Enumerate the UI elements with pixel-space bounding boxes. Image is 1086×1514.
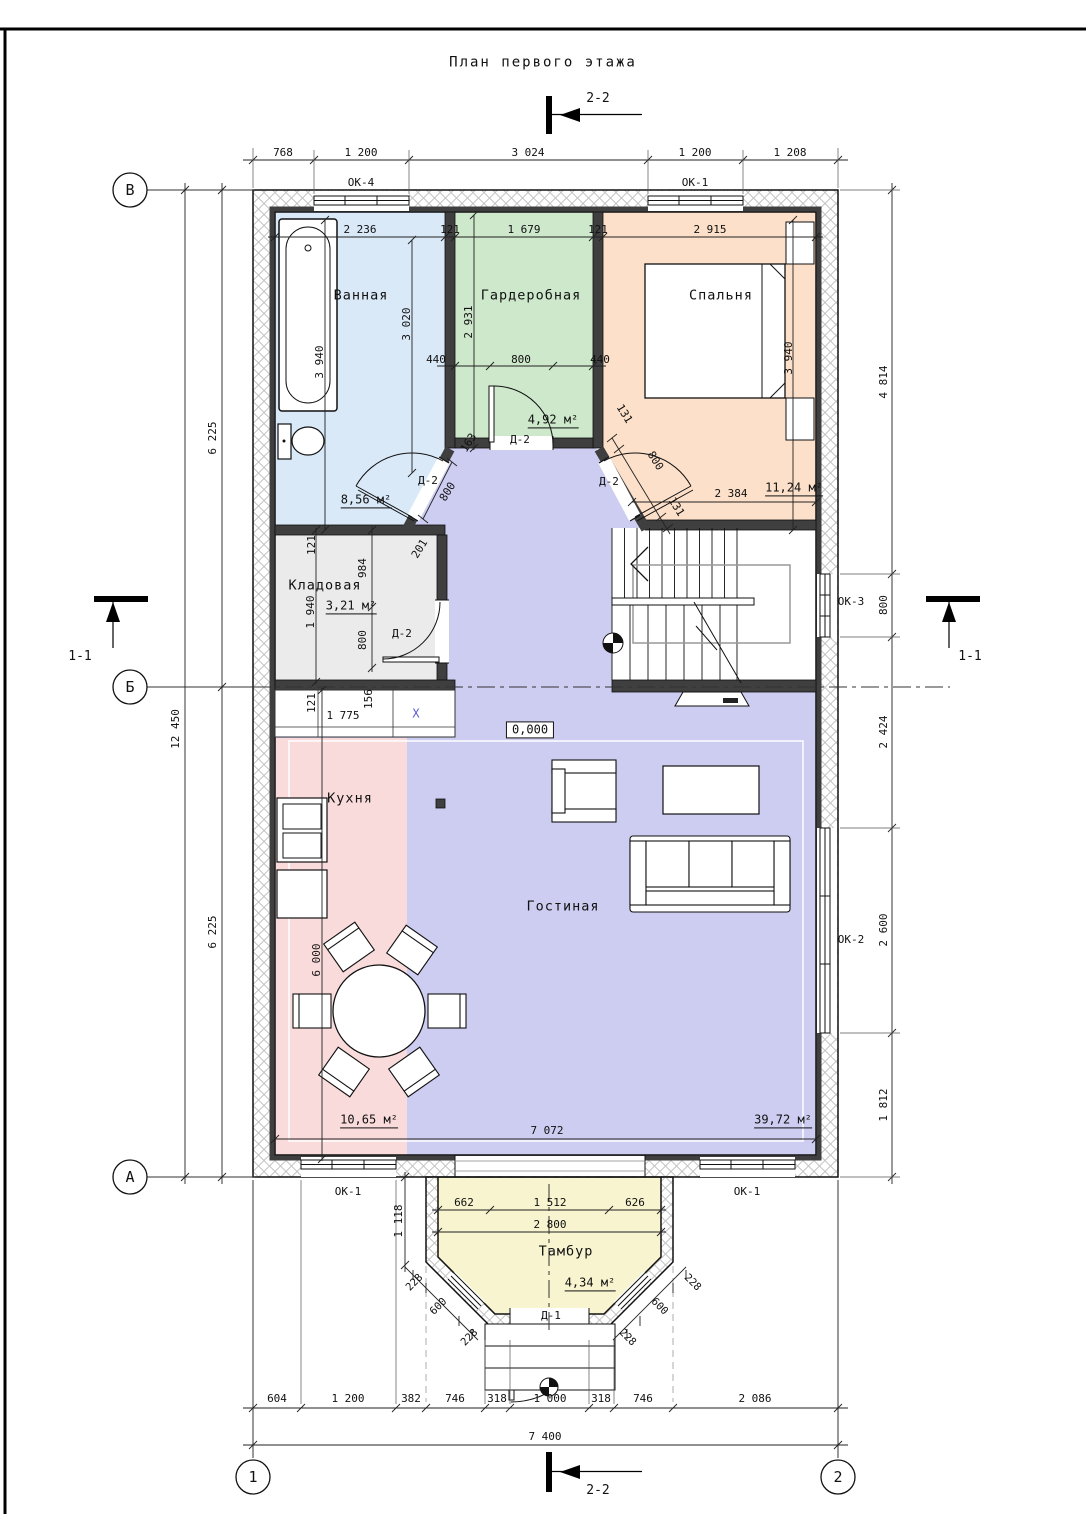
dim-kitchen-wall: 121 — [306, 693, 318, 713]
kitchen-appliances — [277, 798, 327, 918]
nightstand — [786, 222, 814, 264]
section-flag-1-1-left — [94, 596, 148, 648]
window-ok2 — [817, 828, 837, 1033]
dim-wardrobe-chain-0: 440 — [426, 354, 446, 366]
window-ok1-bottom-left — [301, 1157, 396, 1177]
dim-bottom-7: 746 — [633, 1393, 653, 1405]
floor-plan-sheet: План первого этажа 2-2 2-2 1-1 1-1 В Б А… — [0, 0, 1086, 1514]
dim-wardrobe-chain-1: 800 — [511, 354, 531, 366]
door-label-bathroom: Д-2 — [418, 475, 438, 487]
dim-top-4: 1 208 — [773, 147, 806, 159]
axis-label-a: А — [125, 1169, 134, 1186]
axis-label-2: 2 — [833, 1469, 842, 1486]
sofa — [630, 836, 790, 912]
window-label-ok2: ОК-2 — [838, 934, 865, 946]
axis-label-v: В — [125, 182, 134, 199]
dim-right-0: 4 814 — [878, 365, 890, 398]
window-label-ok1-bottom-right: ОК-1 — [734, 1186, 761, 1198]
room-label-living: Гостиная — [526, 900, 599, 915]
dim-inner-top-4: 2 915 — [693, 224, 726, 236]
dim-right-1: 800 — [878, 595, 890, 615]
dim-inner-top-1: 121 — [440, 224, 460, 236]
armchair — [552, 760, 616, 822]
floor-marker — [436, 799, 445, 808]
window-ok1-bottom-right — [700, 1157, 795, 1177]
dim-bedroom-width: 2 384 — [714, 488, 747, 500]
area-label-kitchen: 10,65 м² — [340, 1113, 398, 1128]
area-label-vestibule: 4,34 м² — [565, 1276, 616, 1291]
window-label-ok3: ОК-3 — [838, 596, 865, 608]
dim-top-2: 3 024 — [511, 147, 544, 159]
door-label-wardrobe: Д-2 — [510, 434, 530, 446]
door-label-bedroom: Д-2 — [599, 476, 619, 488]
dim-bottom-1: 1 200 — [331, 1393, 364, 1405]
bathtub — [279, 219, 337, 411]
dim-inner-top-0: 2 236 — [343, 224, 376, 236]
section-label-1-1-left: 1-1 — [68, 650, 91, 664]
entrance-steps — [485, 1324, 615, 1396]
x-marker: X — [412, 707, 419, 720]
dim-bottom-3: 746 — [445, 1393, 465, 1405]
area-label-storage: 3,21 м² — [326, 599, 377, 614]
area-label-living: 39,72 м² — [754, 1113, 812, 1128]
dim-left-0: 6 225 — [207, 421, 219, 454]
door-label-entrance: Д-1 — [541, 1310, 561, 1322]
nightstand — [786, 398, 814, 440]
window-ok3 — [817, 574, 837, 637]
dim-living-width: 7 072 — [530, 1125, 563, 1137]
dim-left-total: 12 450 — [170, 709, 182, 749]
room-label-vestibule: Тамбур — [539, 1245, 594, 1260]
window-label-ok1-bottom-left: ОК-1 — [335, 1186, 362, 1198]
dim-vestibule-chain-2: 626 — [625, 1197, 645, 1209]
axis-label-b: Б — [125, 679, 134, 696]
dim-bedroom-depth: 3 940 — [783, 341, 795, 374]
dim-top-0: 768 — [273, 147, 293, 159]
room-label-bedroom: Спальня — [689, 289, 753, 304]
dim-vestibule-chain-0: 662 — [454, 1197, 474, 1209]
elevation-mark: 0,000 — [506, 721, 554, 738]
room-label-storage: Кладовая — [288, 579, 361, 594]
section-flag-1-1-right — [926, 596, 980, 648]
dim-bottom-8: 2 086 — [738, 1393, 771, 1405]
dim-bottom-total: 7 400 — [528, 1431, 561, 1443]
window-label-ok1-top: ОК-1 — [682, 177, 709, 189]
dim-top-1: 1 200 — [344, 147, 377, 159]
dim-right-2: 2 424 — [878, 715, 890, 748]
page-title: План первого этажа — [449, 55, 637, 70]
dim-kitchen-height: 6 000 — [311, 943, 323, 976]
window-label-ok4: ОК-4 — [348, 177, 375, 189]
dim-storage-door: 800 — [357, 630, 369, 650]
window-ok4 — [314, 191, 409, 211]
dim-left-1: 6 225 — [207, 915, 219, 948]
dim-bathroom-height: 3 940 — [314, 345, 326, 378]
room-label-kitchen: Кухня — [327, 792, 373, 807]
dim-inner-top-2: 1 679 — [507, 224, 540, 236]
dim-bottom-2: 382 — [401, 1393, 421, 1405]
dim-vestibule-chain-1: 1 512 — [533, 1197, 566, 1209]
dim-kitchen-counter: 1 775 — [326, 710, 359, 722]
dim-right-4: 1 812 — [878, 1088, 890, 1121]
floor-plan-drawing — [0, 0, 1086, 1514]
dim-top-3: 1 200 — [678, 147, 711, 159]
tv-unit — [675, 692, 749, 706]
area-label-bedroom: 11,24 м² — [765, 481, 823, 496]
door-label-storage: Д-2 — [392, 628, 412, 640]
room-label-bathroom: Ванная — [334, 289, 389, 304]
dim-inner-top-3: 121 — [588, 224, 608, 236]
area-label-wardrobe: 4,92 м² — [528, 413, 579, 428]
dim-storage-depth: 1 940 — [305, 595, 317, 628]
room-label-wardrobe: Гардеробная — [481, 289, 581, 304]
section-label-1-1-right: 1-1 — [958, 650, 981, 664]
section-label-2-2-top: 2-2 — [586, 92, 609, 106]
dim-wardrobe-depth: 2 931 — [463, 305, 475, 338]
coffee-table — [663, 766, 759, 814]
section-label-2-2-bottom: 2-2 — [586, 1484, 609, 1498]
level-marker-stairs — [603, 633, 623, 653]
dim-right-3: 2 600 — [878, 913, 890, 946]
area-label-bathroom: 8,56 м² — [341, 493, 392, 508]
dim-bathroom-width: 3 020 — [401, 307, 413, 340]
vestibule-opening — [455, 1155, 645, 1177]
dim-storage-wall: 121 — [306, 535, 318, 555]
axis-label-1: 1 — [248, 1469, 257, 1486]
dim-vestibule-width: 2 800 — [533, 1219, 566, 1231]
window-ok1-top — [648, 191, 743, 211]
dim-wardrobe-chain-2: 440 — [590, 354, 610, 366]
dim-bottom-4: 318 — [487, 1393, 507, 1405]
dim-bottom-0: 604 — [267, 1393, 287, 1405]
dim-bottom-5: 1 000 — [533, 1393, 566, 1405]
dim-vestibule-depth: 1 118 — [393, 1204, 405, 1237]
dim-bottom-6: 318 — [591, 1393, 611, 1405]
dim-storage-upper: 984 — [357, 558, 369, 578]
dim-kitchen-gap: 156 — [363, 689, 375, 709]
